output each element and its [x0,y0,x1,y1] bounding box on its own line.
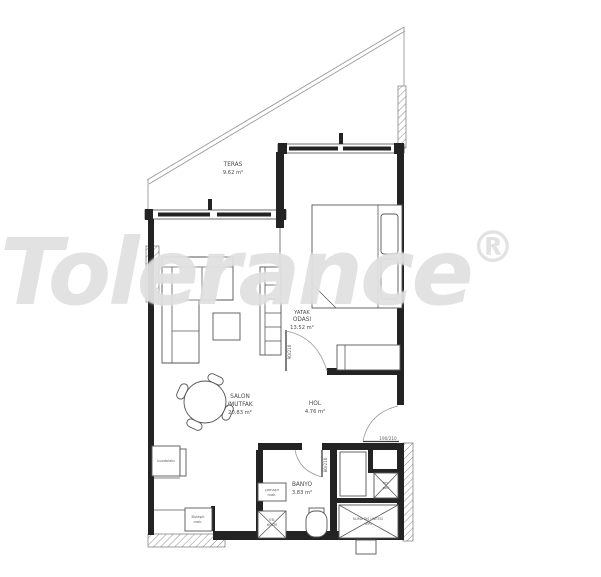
exterior-ledge [356,540,376,554]
teras-area: 9.62 m² [223,170,243,176]
closet-box [340,452,366,496]
salon-label-2: /MUTFAK [227,402,253,408]
dishwasher-label-1: Bulaşık [192,515,206,519]
sofa [162,257,233,363]
salon-area: 20.83 m² [228,410,252,416]
banyo-area: 3.83 m² [292,490,312,496]
washing-machine [258,483,286,501]
sink-label-1: Y.B. [269,518,275,522]
bed [312,205,402,308]
banyo-label: BANYO [292,482,313,488]
bathroom-door-size: 80/210 [323,457,328,472]
yatak-area: 13.52 m² [290,325,314,331]
dishwasher-label-2: mak. [194,520,203,524]
salon-label-1: SALON [230,394,250,400]
coffee-table [213,313,240,340]
teras-label: TERAS [223,162,243,168]
bedroom-window-wall [278,133,404,154]
fridge-label: buzdolabı [157,459,174,463]
bedroom-door-size: 90/210 [287,344,292,359]
floor-plan-drawing: TERAS 9.62 m² YATAK ODASI 13.52 m² SALON… [0,0,601,577]
hol-label: HOL [309,401,322,407]
washer-label-1: çamaşır [265,488,280,492]
sink-label-2: 60CM [267,523,277,527]
terrace-window-wall [145,199,286,220]
washer-label-2: mak. [268,493,277,497]
ac-label-1: KLİMA DIŞ ÜNİTESİ [353,516,383,521]
bedroom-bench [337,345,400,370]
bathroom-door [295,450,322,477]
ac-label-2: YERİ [364,521,371,526]
entrance-door-size: 190/210 [379,436,397,441]
yatak-label-1: YATAK [293,310,310,316]
hol-area: 4.76 m² [305,409,325,415]
dishwasher [154,508,212,531]
toilet [306,508,327,537]
shaft-label-2: şaftı [383,486,390,490]
tv-cabinet [260,267,281,355]
yatak-label-2: ODASI [293,317,312,323]
dining-table [175,372,234,431]
shaft-label-1: tes. [383,481,389,485]
floor-plan-page: TERAS 9.62 m² YATAK ODASI 13.52 m² SALON… [0,0,601,577]
bedroom-door [286,330,327,371]
